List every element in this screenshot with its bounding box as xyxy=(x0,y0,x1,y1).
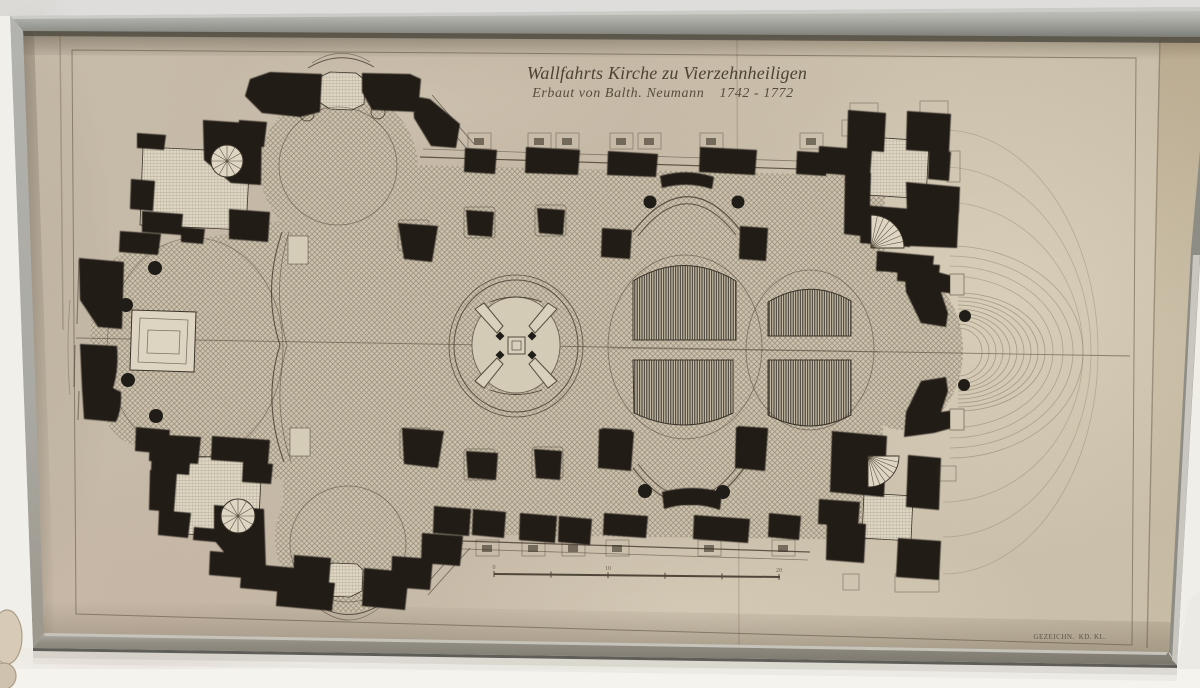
svg-text:20: 20 xyxy=(776,568,782,574)
svg-text:GEZEICHN. KD. KL.: GEZEICHN. KD. KL. xyxy=(1033,633,1106,641)
svg-text:Erbaut von Balth. Neumann 174: Erbaut von Balth. Neumann 1742 - 1772 xyxy=(531,86,794,101)
svg-text:Wallfahrts Kirche zu Vierzehnh: Wallfahrts Kirche zu Vierzehnheiligen xyxy=(527,63,807,83)
svg-text:0: 0 xyxy=(493,565,496,571)
svg-text:10: 10 xyxy=(605,566,611,572)
